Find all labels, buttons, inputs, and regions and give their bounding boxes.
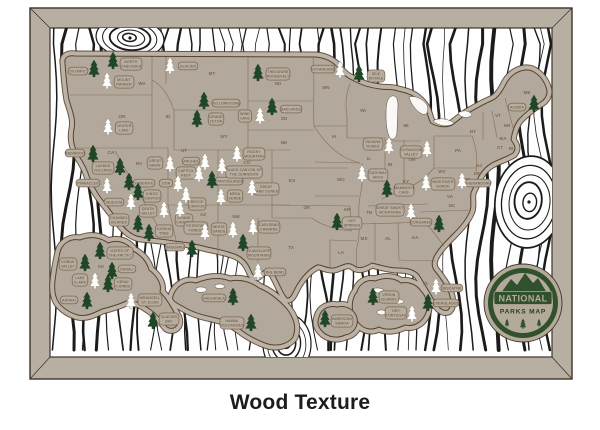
- state-label-sd: SD: [281, 116, 288, 121]
- svg-text:VOLCANOES: VOLCANOES: [220, 324, 244, 328]
- svg-text:OLYMPIC: OLYMPIC: [70, 69, 87, 73]
- state-label-ne: NE: [281, 140, 287, 145]
- svg-text:GREAT: GREAT: [260, 185, 273, 189]
- state-label-ky: KY: [403, 179, 409, 184]
- svg-text:CAVE: CAVE: [240, 117, 250, 121]
- badge-line1: NATIONAL: [498, 294, 547, 304]
- svg-text:CAPITOL: CAPITOL: [178, 169, 194, 173]
- state-label-in: IN: [388, 162, 393, 167]
- svg-text:CANYONLANDS: CANYONLANDS: [215, 179, 244, 183]
- svg-text:SAND DUNES: SAND DUNES: [254, 190, 279, 194]
- state-label-ri: RI: [509, 146, 514, 151]
- svg-text:VALLEY: VALLEY: [141, 212, 155, 216]
- state-label-ma: MA: [499, 136, 507, 141]
- svg-text:THE ARCTIC: THE ARCTIC: [109, 254, 132, 258]
- state-label-az: AZ: [200, 212, 206, 217]
- svg-text:CHANNEL: CHANNEL: [110, 216, 128, 220]
- state-label-va: VA: [447, 194, 454, 199]
- state-label-ga: GA: [412, 235, 420, 240]
- state-label-id: ID: [166, 114, 171, 119]
- svg-text:ISLE: ISLE: [372, 72, 381, 76]
- state-label-ak: AK: [98, 264, 105, 269]
- svg-text:SEQUOIA: SEQUOIA: [106, 200, 124, 204]
- svg-text:EVERGLADES: EVERGLADES: [433, 301, 459, 305]
- state-label-wi: WI: [360, 108, 366, 113]
- svg-text:TORTUGAS: TORTUGAS: [386, 314, 407, 318]
- svg-text:RAINIER: RAINIER: [116, 83, 132, 87]
- svg-text:ZION: ZION: [162, 181, 171, 185]
- state-label-la: LA: [338, 250, 345, 255]
- svg-text:ACADIA: ACADIA: [510, 105, 524, 109]
- svg-text:INDIANA: INDIANA: [365, 140, 381, 144]
- svg-text:GATEWAY: GATEWAY: [369, 171, 387, 175]
- svg-text:LASSEN: LASSEN: [96, 164, 111, 168]
- svg-text:CONGAREE: CONGAREE: [410, 220, 432, 224]
- svg-text:HOT: HOT: [348, 219, 357, 223]
- svg-text:MOUNT: MOUNT: [117, 78, 131, 82]
- svg-text:DENALI: DENALI: [120, 267, 134, 271]
- svg-text:DEATH: DEATH: [142, 207, 155, 211]
- state-label-pa: PA: [455, 148, 462, 153]
- svg-text:VOLCANIC: VOLCANIC: [93, 169, 112, 173]
- svg-text:TREE: TREE: [159, 232, 169, 236]
- svg-text:BISCAYNE: BISCAYNE: [443, 286, 462, 290]
- state-label-ks: KS: [289, 178, 295, 183]
- state-label-tx: TX: [288, 245, 295, 250]
- svg-text:ST. ELIAS: ST. ELIAS: [141, 301, 159, 305]
- state-label-wa: WA: [138, 81, 146, 86]
- svg-text:TETON: TETON: [210, 120, 223, 124]
- svg-text:GRAND: GRAND: [209, 115, 223, 119]
- svg-text:WRANGELL: WRANGELL: [140, 296, 161, 300]
- svg-text:WIND: WIND: [240, 112, 250, 116]
- state-label-wv: WV: [438, 169, 446, 174]
- svg-text:VERDE: VERDE: [229, 197, 242, 201]
- state-label-nv: NV: [136, 161, 143, 166]
- svg-text:BRYCE: BRYCE: [191, 200, 204, 204]
- svg-text:DRY: DRY: [392, 309, 400, 313]
- state-label-wy: WY: [220, 134, 227, 139]
- svg-text:YELLOWSTONE: YELLOWSTONE: [212, 101, 241, 105]
- svg-text:MOUNTAINS: MOUNTAINS: [379, 211, 402, 215]
- state-label-ia: IA: [332, 134, 337, 139]
- state-label-fl: FL: [423, 281, 429, 286]
- svg-text:CAVERNS: CAVERNS: [260, 228, 278, 232]
- svg-text:ISLANDS: ISLANDS: [111, 221, 128, 225]
- svg-text:BLACK CANYON OF: BLACK CANYON OF: [226, 168, 262, 172]
- svg-text:KOBUK: KOBUK: [61, 260, 75, 264]
- state-label-mn: MN: [322, 85, 330, 90]
- svg-text:CARLSBAD: CARLSBAD: [259, 223, 279, 227]
- state-label-me: ME: [524, 90, 531, 95]
- state-label-ny: NY: [470, 129, 476, 134]
- svg-text:BADLANDS: BADLANDS: [281, 107, 302, 111]
- svg-text:SANDS: SANDS: [213, 230, 226, 234]
- state-label-nh: NH: [504, 123, 511, 128]
- park-wrangell-st-elias: WRANGELLST. ELIAS: [126, 292, 162, 309]
- svg-text:REEF: REEF: [181, 174, 191, 178]
- svg-text:GUADALUPE: GUADALUPE: [248, 249, 271, 253]
- state-label-al: AL: [385, 236, 391, 241]
- svg-text:SHENANDOAH: SHENANDOAH: [465, 181, 492, 185]
- state-label-ut: UT: [181, 148, 187, 153]
- svg-text:MOUNTAINS: MOUNTAINS: [248, 254, 271, 258]
- svg-text:KINGS: KINGS: [146, 192, 158, 196]
- svg-text:MOUNTAIN: MOUNTAIN: [244, 155, 264, 159]
- svg-text:BASIN: BASIN: [149, 164, 161, 168]
- state-label-il: IL: [367, 156, 371, 161]
- product-caption: Wood Texture: [0, 391, 600, 415]
- svg-text:GLACIER: GLACIER: [161, 315, 178, 319]
- state-label-nd: ND: [275, 81, 282, 86]
- state-label-mi: MI: [403, 123, 408, 128]
- state-label-co: CO: [244, 160, 251, 165]
- svg-text:WHITE: WHITE: [213, 225, 226, 229]
- state-label-de: DE: [474, 171, 480, 176]
- badge-line2: PARKS MAP: [500, 309, 546, 316]
- svg-text:CRATER: CRATER: [116, 124, 131, 128]
- svg-text:HAWAII: HAWAII: [225, 319, 238, 323]
- state-label-ar: AR: [344, 207, 351, 212]
- svg-text:NEW RIVER: NEW RIVER: [432, 180, 454, 184]
- svg-text:CLARK: CLARK: [74, 281, 87, 285]
- wood-parks-map: WAORCANVIDMTWYUTAZCONMNDSDNEKSOKTXMNIAMO…: [0, 0, 600, 385]
- state-label-mt: MT: [209, 71, 216, 76]
- svg-text:SAGUARO: SAGUARO: [166, 245, 185, 249]
- svg-text:VALLEY: VALLEY: [61, 265, 75, 269]
- svg-text:MESA: MESA: [230, 192, 241, 196]
- state-label-mo: MO: [337, 177, 345, 182]
- svg-text:CUYAHOGA: CUYAHOGA: [401, 148, 422, 152]
- svg-text:ROYALE: ROYALE: [369, 77, 384, 81]
- svg-text:SAMOA: SAMOA: [335, 322, 349, 326]
- svg-text:GREAT: GREAT: [149, 159, 162, 163]
- svg-text:LAKE: LAKE: [75, 276, 85, 280]
- svg-text:MAMMOTH: MAMMOTH: [394, 186, 414, 190]
- svg-text:AMERICAN: AMERICAN: [332, 317, 352, 321]
- state-label-vt: VT: [495, 113, 501, 118]
- svg-text:GLACIER: GLACIER: [180, 64, 197, 68]
- state-label-ct: CT: [497, 145, 503, 150]
- svg-text:HALEAKALA: HALEAKALA: [203, 296, 225, 300]
- svg-text:CAVE: CAVE: [399, 191, 409, 195]
- svg-text:CANYON: CANYON: [144, 197, 160, 201]
- state-label-nm: NM: [232, 214, 239, 219]
- svg-text:JOSHUA: JOSHUA: [156, 227, 172, 231]
- park-dry-tortugas: DRYTORTUGAS: [385, 305, 417, 322]
- svg-text:BIG BEND: BIG BEND: [266, 270, 284, 274]
- state-label-or: OR: [119, 114, 127, 119]
- svg-text:FJORDS: FJORDS: [116, 285, 131, 289]
- svg-text:VIRGIN: VIRGIN: [383, 293, 396, 297]
- svg-text:GATES OF: GATES OF: [111, 249, 130, 253]
- svg-text:ROCKY: ROCKY: [247, 150, 261, 154]
- svg-text:REDWOOD: REDWOOD: [65, 151, 85, 155]
- svg-text:THE GUNNISON: THE GUNNISON: [230, 173, 259, 177]
- product-screenshot: WAORCANVIDMTWYUTAZCONMNDSDNEKSOKTXMNIAMO…: [0, 0, 600, 430]
- svg-text:CANYON: CANYON: [189, 205, 205, 209]
- svg-text:ISLANDS: ISLANDS: [381, 298, 398, 302]
- state-label-nc: NC: [449, 203, 456, 208]
- svg-text:CASCADES: CASCADES: [121, 65, 142, 69]
- state-label-nj: NJ: [476, 163, 482, 168]
- state-label-ms: MS: [361, 236, 368, 241]
- svg-text:BAY: BAY: [165, 320, 173, 324]
- svg-text:KENAI: KENAI: [117, 280, 128, 284]
- svg-text:GREAT SMOKY: GREAT SMOKY: [377, 206, 405, 210]
- svg-text:SPRINGS: SPRINGS: [344, 224, 361, 228]
- state-label-ca: CA: [108, 150, 115, 155]
- svg-text:ROOSEVELT: ROOSEVELT: [267, 75, 290, 79]
- svg-text:PINNACLES: PINNACLES: [77, 181, 99, 185]
- svg-text:KATMAI: KATMAI: [62, 298, 76, 302]
- svg-text:DUNES: DUNES: [366, 145, 380, 149]
- svg-text:ARCHES: ARCHES: [183, 159, 199, 163]
- svg-text:VOYAGEURS: VOYAGEURS: [311, 67, 335, 71]
- svg-text:ARCH: ARCH: [373, 176, 384, 180]
- svg-text:VALLEY: VALLEY: [404, 153, 418, 157]
- state-label-ok: OK: [304, 205, 312, 210]
- svg-text:NORTH: NORTH: [124, 60, 137, 64]
- svg-text:GORGE: GORGE: [436, 185, 450, 189]
- state-label-tn: TN: [366, 210, 373, 215]
- svg-text:THEODORE: THEODORE: [267, 70, 289, 74]
- svg-text:LAKE: LAKE: [119, 129, 129, 133]
- national-parks-badge: NATIONALPARKS MAP: [484, 264, 562, 342]
